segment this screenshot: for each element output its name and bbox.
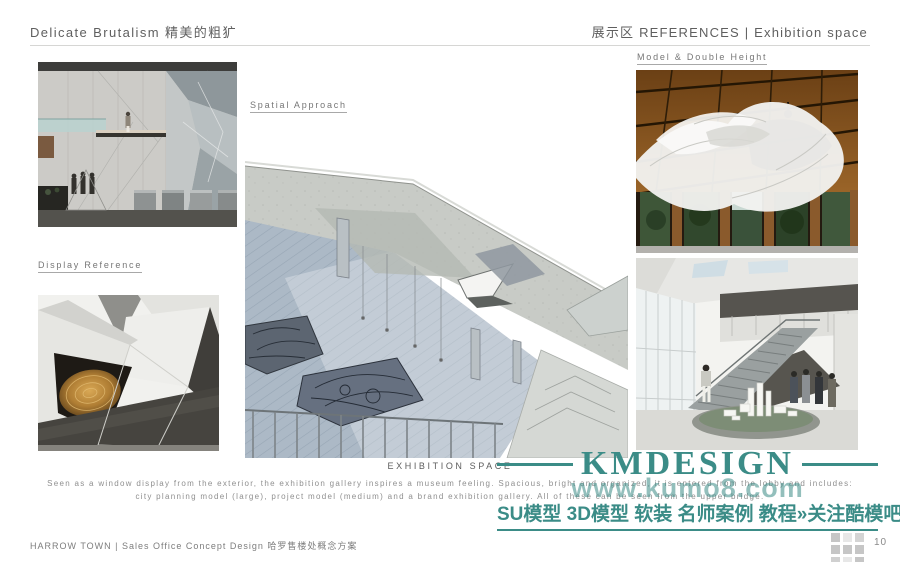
label-model-double-height: Model & Double Height [637, 52, 767, 65]
atrium-render-image [636, 258, 858, 450]
watermark-right-rule [802, 463, 878, 466]
axonometric-drawing-graphic [245, 158, 628, 458]
footer-project-title: HARROW TOWN | Sales Office Concept Desig… [30, 539, 357, 552]
label-display-reference: Display Reference [38, 260, 142, 273]
display-reference-graphic [38, 295, 219, 451]
ceiling-sculpture-graphic [636, 70, 858, 253]
label-spatial-approach: Spatial Approach [250, 100, 347, 113]
display-reference-image [38, 295, 219, 451]
header-divider [30, 45, 870, 46]
axonometric-drawing-image [245, 158, 628, 458]
watermark-underline [497, 529, 878, 531]
section-title: 展示区 REFERENCES | Exhibition space [592, 22, 868, 41]
page-number: 10 [874, 537, 894, 548]
section-render-image [38, 62, 237, 227]
watermark-url: www.kumo8.com [497, 475, 878, 502]
slide-title: Delicate Brutalism 精美的粗犷 [30, 22, 237, 41]
section-render-graphic [38, 62, 237, 227]
grid-icon [831, 533, 864, 562]
ceiling-sculpture-image [636, 70, 858, 253]
watermark-tagline: SU模型 3D模型 软装 名师案例 教程»关注酷模吧 [497, 504, 878, 527]
presentation-slide: Delicate Brutalism 精美的粗犷 展示区 REFERENCES … [0, 0, 900, 562]
atrium-render-graphic [636, 258, 858, 450]
watermark-left-rule [497, 463, 573, 466]
